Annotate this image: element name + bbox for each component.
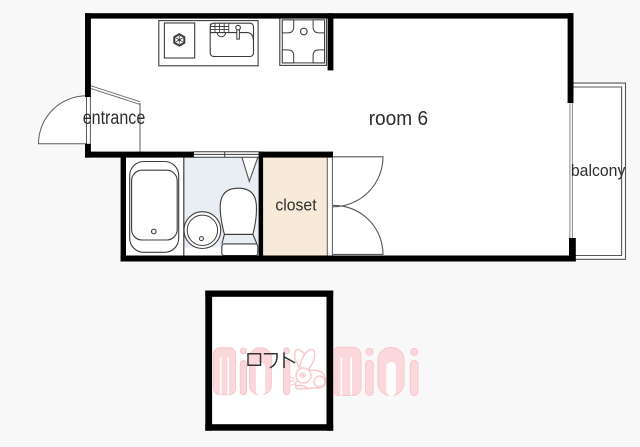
svg-text:entrance: entrance bbox=[83, 108, 146, 129]
svg-text:closet: closet bbox=[275, 196, 316, 215]
svg-text:balcony: balcony bbox=[571, 161, 626, 180]
svg-text:room 6: room 6 bbox=[369, 108, 428, 130]
